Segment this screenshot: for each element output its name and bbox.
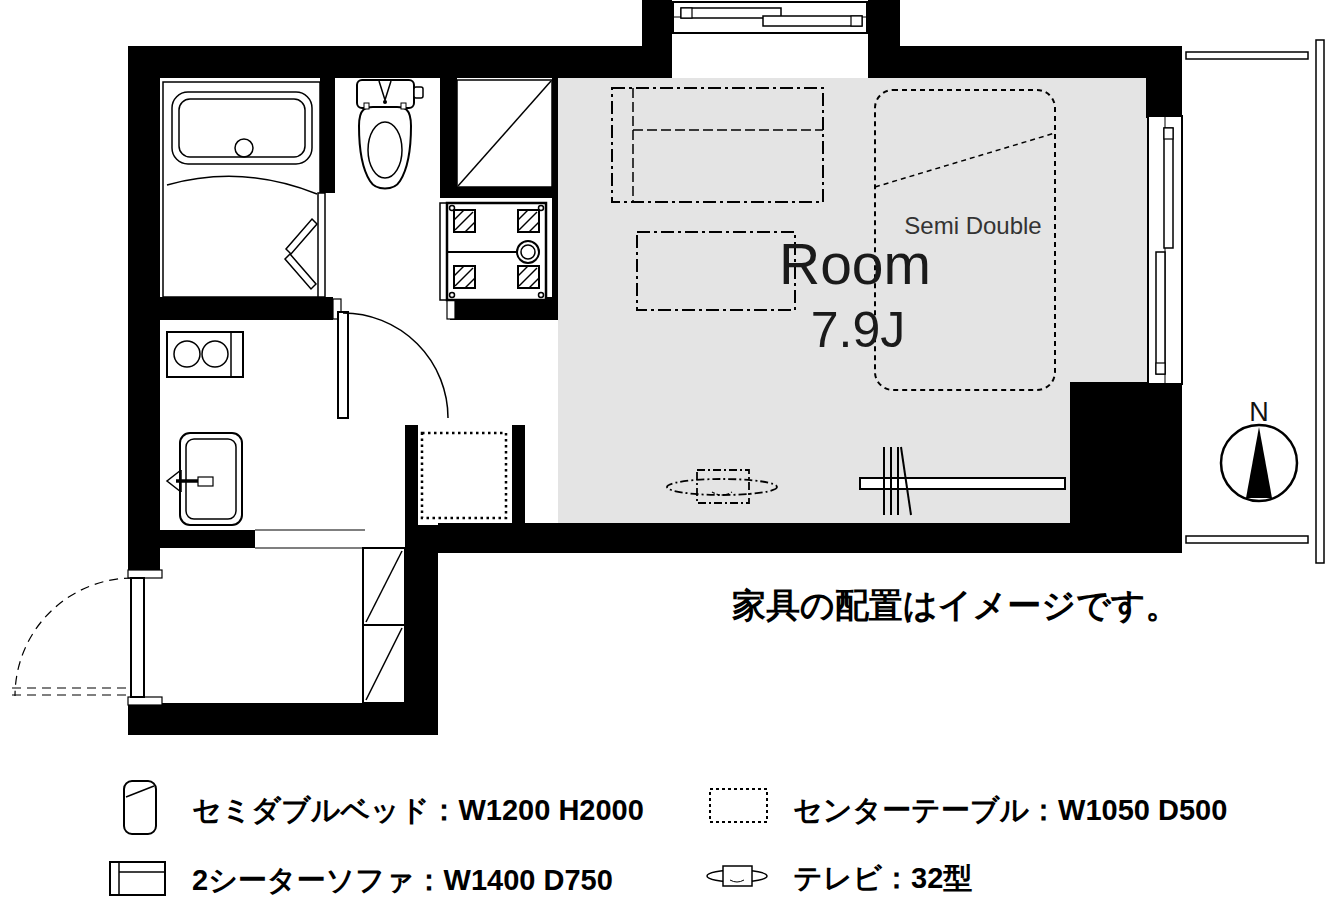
compass-north-label: N [1249, 397, 1269, 427]
bath-door-frame [318, 193, 325, 297]
floor-plan: N Room 7.9J Semi Double 家具の配置はイメージです。 セミ… [0, 0, 1330, 897]
room-size-label: 7.9J [811, 302, 906, 358]
right-sliding-window [1148, 116, 1182, 384]
room-label: Room [779, 232, 931, 296]
top-sliding-window [673, 2, 867, 33]
legend-item-label: セミダブルベッド：W1200 H2000 [192, 794, 644, 826]
legend-item-label: センターテーブル：W1050 D500 [793, 794, 1227, 826]
legend-item-label: テレビ：32型 [793, 862, 972, 894]
legend-item-label: 2シーターソファ：W1400 D750 [192, 864, 613, 896]
shoe-cabinet [363, 548, 405, 703]
toilet-bowl [359, 107, 411, 189]
semi-double-bed-icon [124, 781, 156, 834]
bed-size-label: Semi Double [904, 212, 1041, 239]
stove [167, 332, 243, 377]
center-table-icon [710, 789, 767, 822]
furniture-notice: 家具の配置はイメージです。 [732, 586, 1180, 624]
shower-room [440, 203, 546, 300]
two-seater-sofa-icon [110, 862, 165, 895]
